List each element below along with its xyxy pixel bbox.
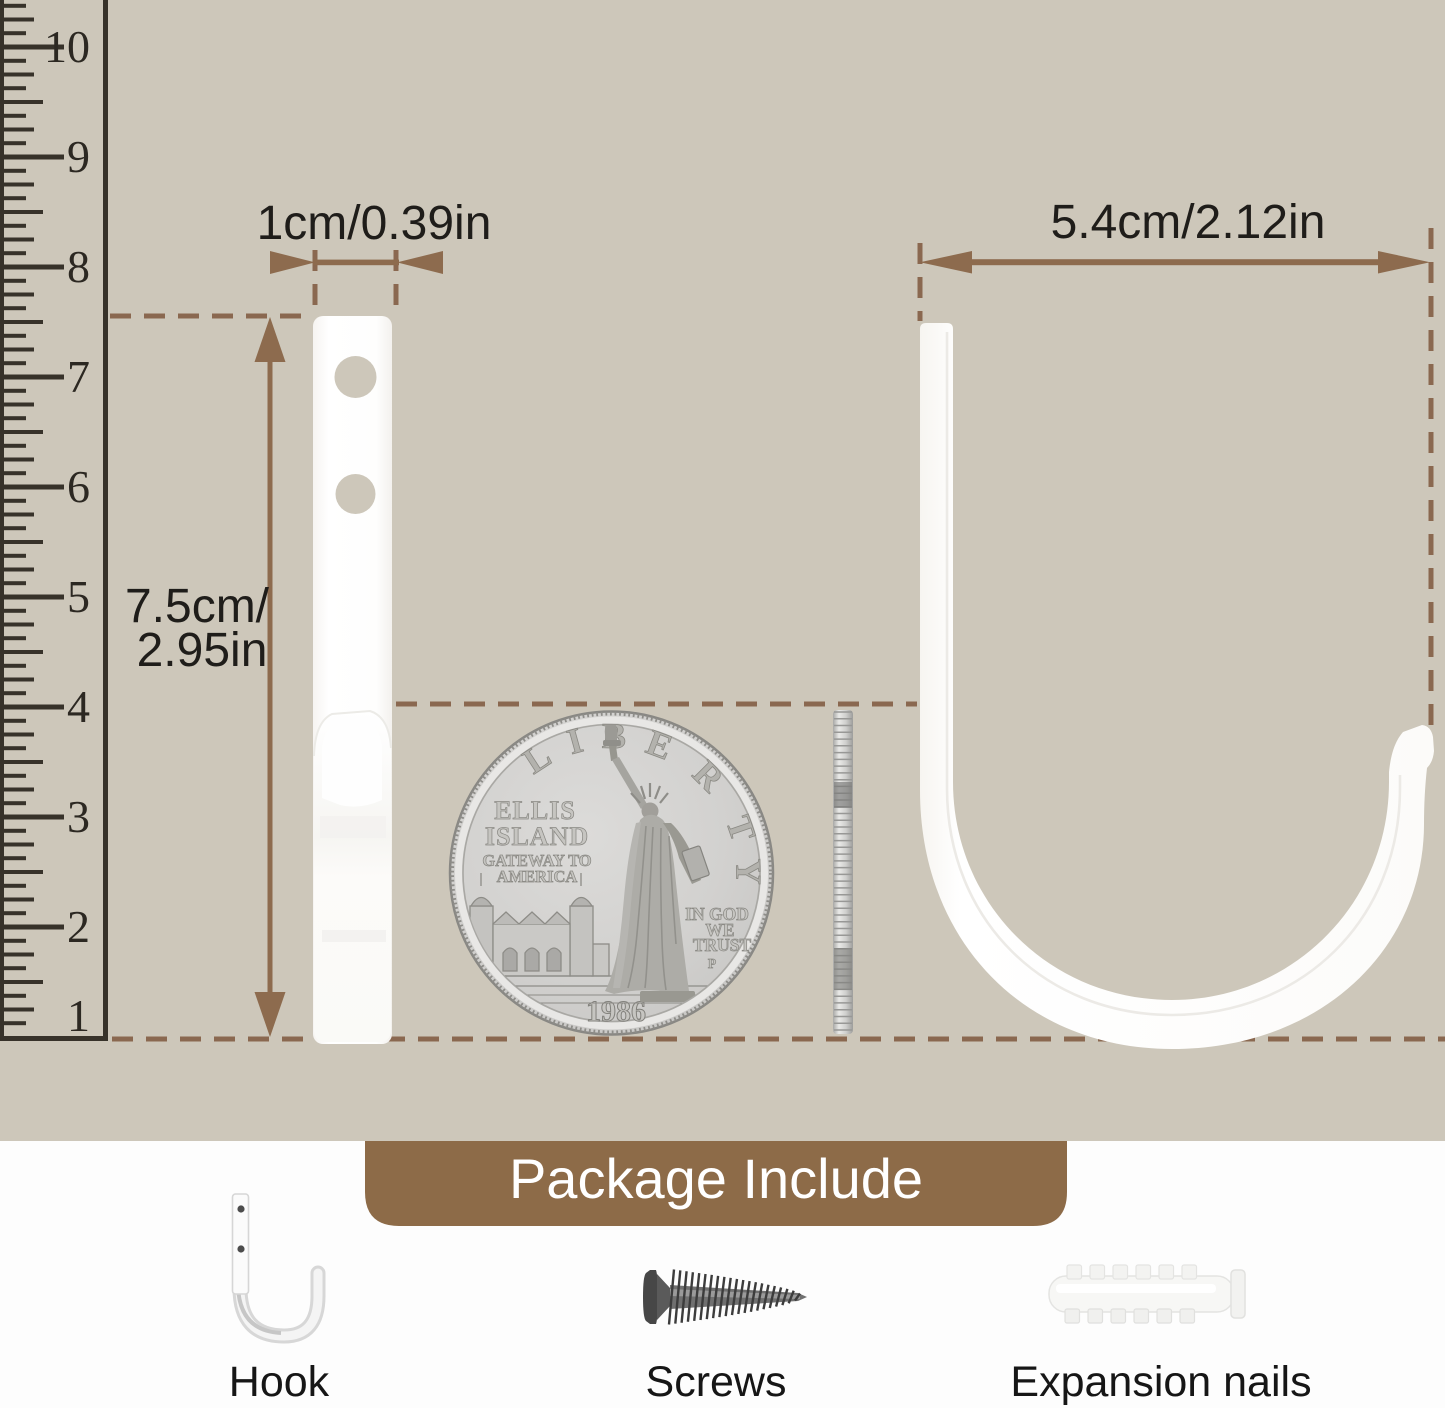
svg-text:6: 6 [67, 461, 90, 512]
svg-text:Screws: Screws [646, 1358, 787, 1406]
svg-text:1986: 1986 [586, 995, 646, 1028]
svg-text:TRUST: TRUST [693, 935, 752, 955]
svg-text:7: 7 [67, 351, 90, 402]
svg-text:4: 4 [67, 681, 90, 732]
svg-text:2.95in: 2.95in [137, 624, 268, 677]
svg-text:10: 10 [44, 21, 90, 72]
svg-text:Expansion nails: Expansion nails [1010, 1358, 1311, 1406]
svg-text:Hook: Hook [229, 1358, 330, 1406]
svg-text:9: 9 [67, 131, 90, 182]
svg-text:3: 3 [67, 791, 90, 842]
svg-text:Y: Y [728, 859, 768, 885]
svg-text:8: 8 [67, 241, 90, 292]
svg-text:P: P [708, 956, 716, 971]
svg-text:Package Include: Package Include [509, 1147, 923, 1210]
svg-text:1: 1 [67, 990, 90, 1041]
svg-text:5.4cm/2.12in: 5.4cm/2.12in [1051, 196, 1326, 249]
svg-text:AMERICA: AMERICA [497, 867, 578, 886]
svg-text:ISLAND: ISLAND [485, 822, 589, 851]
svg-text:2: 2 [67, 901, 90, 952]
svg-text:5: 5 [67, 571, 90, 622]
svg-text:ELLIS: ELLIS [494, 796, 576, 825]
svg-text:1cm/0.39in: 1cm/0.39in [257, 197, 492, 250]
